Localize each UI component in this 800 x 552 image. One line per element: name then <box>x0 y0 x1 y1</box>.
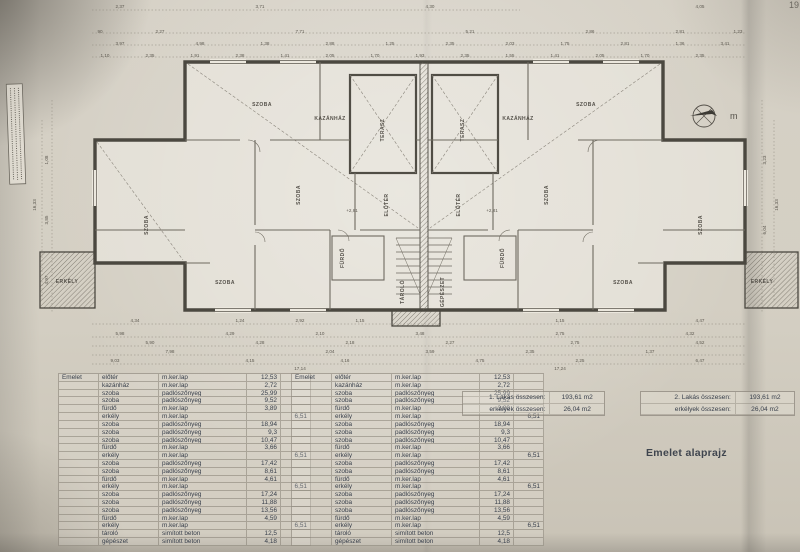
table-cell: 17,24 <box>480 491 514 499</box>
dimension-label: 4,98 <box>196 41 205 46</box>
table-cell <box>514 491 544 499</box>
dimension-label: 2,04 <box>326 349 335 354</box>
summary-value: 26,04 m2 <box>550 404 604 416</box>
table-cell: 12,5 <box>247 530 281 538</box>
dimension-label: 7,71 <box>296 29 305 34</box>
dimension-label: 2,38 <box>236 53 245 58</box>
table-cell: 4,59 <box>247 515 281 523</box>
table-cell <box>59 530 99 538</box>
table-cell <box>292 460 332 468</box>
dimension-label: 2,35 <box>446 41 455 46</box>
dimension-label: 16,33 <box>32 199 37 211</box>
dimension-label: 4,05 <box>696 4 705 9</box>
dimension-label: 6,04 <box>762 225 767 234</box>
table-cell: padlószőnyeg <box>392 491 480 499</box>
party-wall <box>420 62 428 310</box>
table-cell <box>59 491 99 499</box>
dimension-label: 4,97 <box>44 275 49 284</box>
dimension-label: 2,05 <box>596 53 605 58</box>
room-schedule-table-1: Emeletelőtérm.ker.lap12,53kazánházm.ker.… <box>58 373 311 546</box>
table-cell: padlószőnyeg <box>159 437 247 445</box>
table-cell: szoba <box>99 437 159 445</box>
table-cell: padlószőnyeg <box>159 390 247 398</box>
table-cell: m.ker.lap <box>392 452 480 460</box>
table-cell: szoba <box>332 421 392 429</box>
table-cell <box>514 437 544 445</box>
dimension-label: 5,90 <box>146 340 155 345</box>
table-cell: padlószőnyeg <box>392 507 480 515</box>
table-cell: simított beton <box>392 530 480 538</box>
table-cell: erkély <box>332 413 392 421</box>
dimension-label: 17,24 <box>554 366 566 371</box>
room-label: TERASZ <box>460 119 466 142</box>
dimension-label: 2,25 <box>576 358 585 363</box>
table-cell <box>292 499 332 507</box>
summary-apartment-2: 2. Lakás összesen: 193,61 m2 erkélyek ös… <box>640 391 795 416</box>
dimension-label: 2,75 <box>556 331 565 336</box>
table-cell: m.ker.lap <box>392 522 480 530</box>
dimension-label: 1,41 <box>281 53 290 58</box>
dimension-label: 16,33 <box>774 199 779 211</box>
dimension-label: 1,70 <box>641 53 650 58</box>
table-cell: 3,89 <box>247 405 281 413</box>
dimension-label: 1,93 <box>416 53 425 58</box>
table-cell: kazánház <box>99 382 159 390</box>
table-cell: Emelet <box>292 374 332 382</box>
table-cell: 4,59 <box>480 515 514 523</box>
dimension-label: 5,21 <box>466 29 475 34</box>
dimension-label: 2,81 <box>676 29 685 34</box>
table-cell <box>292 530 332 538</box>
table-cell: szoba <box>99 397 159 405</box>
table-cell: m.ker.lap <box>159 444 247 452</box>
room-label: SZOBA <box>576 102 596 108</box>
table-cell <box>292 468 332 476</box>
table-cell <box>59 468 99 476</box>
dimension-label: 1,25 <box>386 41 395 46</box>
table-cell: fürdő <box>332 444 392 452</box>
summary-label: 1. Lakás összesen: <box>463 392 550 404</box>
table-cell: m.ker.lap <box>159 405 247 413</box>
table-cell <box>59 452 99 460</box>
table-cell: 10,47 <box>247 437 281 445</box>
table-cell: padlószőnyeg <box>159 499 247 507</box>
table-cell: erkély <box>332 452 392 460</box>
dimension-label: 3,48 <box>416 331 425 336</box>
table-cell: 17,24 <box>247 491 281 499</box>
table-cell: szoba <box>332 429 392 437</box>
table-cell <box>480 522 514 530</box>
table-cell: szoba <box>99 460 159 468</box>
table-cell: m.ker.lap <box>159 374 247 382</box>
room-label: TÁROLÓ <box>398 280 406 304</box>
table-cell: fürdő <box>99 405 159 413</box>
table-cell <box>514 515 544 523</box>
room-label: SZOBA <box>252 102 272 108</box>
table-cell: 10,47 <box>480 437 514 445</box>
table-cell <box>514 382 544 390</box>
room-label: SZOBA <box>698 215 704 235</box>
dimension-label: 3,59 <box>426 349 435 354</box>
dimension-label: 4,30 <box>426 4 435 9</box>
table-cell: szoba <box>99 491 159 499</box>
table-cell: 9,3 <box>480 429 514 437</box>
table-cell <box>514 444 544 452</box>
table-cell: padlószőnyeg <box>159 460 247 468</box>
table-cell: 2,72 <box>247 382 281 390</box>
table-cell: 17,42 <box>480 460 514 468</box>
table-cell: 3,66 <box>247 444 281 452</box>
dimension-label: 7,98 <box>166 349 175 354</box>
dimension-label: 4,52 <box>696 340 705 345</box>
dimension-label: 1,15 <box>356 318 365 323</box>
dimension-label: 1,75 <box>561 41 570 46</box>
room-label: FÜRDŐ <box>339 248 346 268</box>
table-cell: 25,99 <box>247 390 281 398</box>
table-cell: m.ker.lap <box>392 476 480 484</box>
table-cell: szoba <box>332 468 392 476</box>
table-cell: erkély <box>99 452 159 460</box>
table-cell: fürdő <box>332 515 392 523</box>
table-cell: m.ker.lap <box>159 452 247 460</box>
table-cell <box>292 382 332 390</box>
room-label: SZOBA <box>544 185 550 205</box>
table-cell: 18,94 <box>480 421 514 429</box>
room-label: FÜRDŐ <box>499 248 506 268</box>
table-cell: előtér <box>332 374 392 382</box>
table-cell <box>514 530 544 538</box>
table-cell <box>59 515 99 523</box>
dimension-label: 4,34 <box>131 318 140 323</box>
table-cell: gépészet <box>332 538 392 546</box>
table-cell: erkély <box>332 483 392 491</box>
dimension-label: 4,28 <box>256 340 265 345</box>
dimension-label: 2,81 <box>621 41 630 46</box>
table-cell: padlószőnyeg <box>159 491 247 499</box>
table-cell <box>247 413 281 421</box>
table-cell: szoba <box>99 499 159 507</box>
table-cell: 17,42 <box>247 460 281 468</box>
table-cell <box>247 522 281 530</box>
table-cell: m.ker.lap <box>159 522 247 530</box>
dimension-label: 3,71 <box>256 4 265 9</box>
table-cell <box>514 421 544 429</box>
dimension-label: 1,24 <box>236 318 245 323</box>
table-cell: 6,51 <box>514 522 544 530</box>
dimension-label: 1,08 <box>44 155 49 164</box>
summary-value: 193,61 m2 <box>736 392 794 404</box>
table-cell <box>292 390 332 398</box>
table-cell <box>292 421 332 429</box>
dimension-label: 5,98 <box>116 331 125 336</box>
table-cell: előtér <box>99 374 159 382</box>
table-cell <box>292 437 332 445</box>
drawing-title: Emelet alaprajz <box>646 447 727 459</box>
table-cell <box>292 483 332 491</box>
dimension-label: 2,35 <box>146 53 155 58</box>
table-cell: m.ker.lap <box>392 374 480 382</box>
dimension-label: 1,55 <box>506 53 515 58</box>
table-cell <box>292 507 332 515</box>
table-cell: 2,72 <box>480 382 514 390</box>
dimension-label: 2,27 <box>446 340 455 345</box>
table-cell <box>292 397 332 405</box>
table-cell: 9,3 <box>247 429 281 437</box>
table-cell: padlószőnyeg <box>159 397 247 405</box>
table-cell: 9,52 <box>247 397 281 405</box>
table-cell <box>514 538 544 546</box>
dimension-label: 2,35 <box>696 53 705 58</box>
table-cell <box>59 483 99 491</box>
table-cell <box>59 382 99 390</box>
compass-icon: m <box>690 105 738 127</box>
dimension-label: 9,03 <box>111 358 120 363</box>
table-cell: 13,56 <box>480 507 514 515</box>
summary-label: erkélyek összesen: <box>463 404 550 416</box>
table-cell <box>247 452 281 460</box>
table-cell: tároló <box>332 530 392 538</box>
table-cell: 18,94 <box>247 421 281 429</box>
table-cell <box>292 429 332 437</box>
room-label: ERKÉLY <box>56 277 79 285</box>
table-cell <box>292 413 332 421</box>
table-cell <box>292 538 332 546</box>
room-label: ELŐTÉR <box>454 194 462 217</box>
table-cell <box>59 476 99 484</box>
table-cell: 3,66 <box>480 444 514 452</box>
dimension-label: 3,97 <box>116 41 125 46</box>
table-cell: szoba <box>332 397 392 405</box>
room-label: SZOBA <box>215 280 235 286</box>
dimension-label: 2,88 <box>326 41 335 46</box>
dimension-label: 1,10 <box>101 53 110 58</box>
dimension-label: 1,41 <box>551 53 560 58</box>
room-label: ERKÉLY <box>751 277 774 285</box>
dimension-label: 3,41 <box>721 41 730 46</box>
table-cell: m.ker.lap <box>159 515 247 523</box>
dimension-label: 2,35 <box>526 349 535 354</box>
table-cell: padlószőnyeg <box>159 507 247 515</box>
dimension-label: 90 <box>97 29 103 34</box>
room-label: KAZÁNHÁZ <box>502 115 533 122</box>
room-label: SZOBA <box>144 215 150 235</box>
dimension-label: +2,81 <box>346 208 358 213</box>
table-cell: m.ker.lap <box>392 483 480 491</box>
table-cell <box>59 405 99 413</box>
table-cell: erkély <box>99 483 159 491</box>
table-cell: fürdő <box>99 444 159 452</box>
dimension-label: +2,81 <box>486 208 498 213</box>
table-cell: padlószőnyeg <box>159 468 247 476</box>
dimension-label: 4,16 <box>341 358 350 363</box>
table-cell: padlószőnyeg <box>159 421 247 429</box>
table-cell: padlószőnyeg <box>392 499 480 507</box>
dimension-label: 2,10 <box>316 331 325 336</box>
table-cell: szoba <box>332 390 392 398</box>
table-cell: padlószőnyeg <box>392 468 480 476</box>
table-cell: m.ker.lap <box>159 483 247 491</box>
summary-value: 193,61 m2 <box>550 392 604 404</box>
svg-text:m: m <box>730 111 738 121</box>
summary-label: 2. Lakás összesen: <box>641 392 736 404</box>
table-cell <box>59 421 99 429</box>
table-cell: 6,51 <box>514 452 544 460</box>
table-cell <box>59 460 99 468</box>
table-cell <box>292 444 332 452</box>
room-label: SZOBA <box>296 185 302 205</box>
dimension-label: 3,23 <box>762 155 767 164</box>
table-cell: 8,61 <box>480 468 514 476</box>
dimension-label: 1,38 <box>261 41 270 46</box>
table-cell <box>59 390 99 398</box>
scanned-floorplan-page: { "page": { "number": "19", "title": "Em… <box>0 0 800 552</box>
table-cell <box>514 476 544 484</box>
table-cell <box>480 483 514 491</box>
dimension-label: 1,37 <box>646 349 655 354</box>
table-cell: szoba <box>332 437 392 445</box>
room-label: TERASZ <box>380 119 386 142</box>
table-cell: padlószőnyeg <box>159 429 247 437</box>
dimension-label: 4,75 <box>476 358 485 363</box>
dimension-label: 2,18 <box>346 340 355 345</box>
table-cell: szoba <box>99 429 159 437</box>
room-label: ELŐTÉR <box>382 194 390 217</box>
table-cell: m.ker.lap <box>159 413 247 421</box>
table-cell: padlószőnyeg <box>392 437 480 445</box>
dimension-label: 4,29 <box>226 331 235 336</box>
dimension-label: 2,03 <box>506 41 515 46</box>
table-cell <box>514 468 544 476</box>
table-cell: Emelet <box>59 374 99 382</box>
table-cell <box>292 491 332 499</box>
table-cell <box>59 444 99 452</box>
dimension-label: 1,23 <box>734 29 743 34</box>
dimension-label: 6,47 <box>696 358 705 363</box>
table-cell <box>59 437 99 445</box>
table-cell: erkély <box>332 522 392 530</box>
table-cell: szoba <box>99 468 159 476</box>
dimension-label: 1,15 <box>556 318 565 323</box>
table-cell: kazánház <box>332 382 392 390</box>
table-cell <box>514 429 544 437</box>
page-number: 19 <box>789 0 799 10</box>
table-cell: padlószőnyeg <box>392 460 480 468</box>
room-label: SZOBA <box>613 280 633 286</box>
table-cell: 4,61 <box>480 476 514 484</box>
table-cell: fürdő <box>99 515 159 523</box>
dimension-label: 4,32 <box>686 331 695 336</box>
table-cell: szoba <box>332 499 392 507</box>
table-cell <box>247 483 281 491</box>
table-cell <box>514 499 544 507</box>
dimension-label: 2,75 <box>571 340 580 345</box>
table-cell: padlószőnyeg <box>392 421 480 429</box>
table-cell: tároló <box>99 530 159 538</box>
table-cell <box>292 522 332 530</box>
table-cell: erkély <box>99 522 159 530</box>
table-cell: gépészet <box>99 538 159 546</box>
table-cell: szoba <box>99 390 159 398</box>
dimension-label: 1,70 <box>371 53 380 58</box>
dimension-label: 2,05 <box>326 53 335 58</box>
table-cell: szoba <box>332 507 392 515</box>
table-cell: 12,53 <box>247 374 281 382</box>
dimension-label: 2,37 <box>116 4 125 9</box>
table-cell: padlószőnyeg <box>392 429 480 437</box>
room-label: GÉPÉSZET <box>438 277 446 307</box>
table-cell <box>292 515 332 523</box>
stamp <box>6 84 25 184</box>
table-cell: szoba <box>332 491 392 499</box>
table-cell: 8,61 <box>247 468 281 476</box>
table-cell: 4,61 <box>247 476 281 484</box>
dimension-label: 17,14 <box>294 366 306 371</box>
table-cell <box>514 507 544 515</box>
summary-apartment-1: 1. Lakás összesen: 193,61 m2 erkélyek ös… <box>462 391 605 416</box>
table-cell <box>292 452 332 460</box>
table-cell <box>292 405 332 413</box>
table-cell <box>514 374 544 382</box>
dimension-label: 2,35 <box>461 53 470 58</box>
table-cell: fürdő <box>332 476 392 484</box>
table-cell: simított beton <box>392 538 480 546</box>
table-cell: m.ker.lap <box>159 382 247 390</box>
table-cell: 11,88 <box>480 499 514 507</box>
room-label: KAZÁNHÁZ <box>314 115 345 122</box>
table-cell: szoba <box>332 460 392 468</box>
table-cell <box>59 522 99 530</box>
table-cell: 13,56 <box>247 507 281 515</box>
dimension-label: 2,27 <box>156 29 165 34</box>
table-cell: m.ker.lap <box>392 382 480 390</box>
table-cell <box>59 413 99 421</box>
table-cell <box>514 460 544 468</box>
summary-value: 26,04 m2 <box>736 404 794 416</box>
table-cell: m.ker.lap <box>392 515 480 523</box>
table-cell: 12,5 <box>480 530 514 538</box>
table-cell <box>59 397 99 405</box>
table-cell: szoba <box>99 421 159 429</box>
table-cell <box>292 476 332 484</box>
table-cell <box>59 507 99 515</box>
table-cell: fürdő <box>99 476 159 484</box>
table-cell: erkély <box>99 413 159 421</box>
dimension-label: 2,86 <box>586 29 595 34</box>
table-cell: simított beton <box>159 530 247 538</box>
table-cell: 4,18 <box>247 538 281 546</box>
dimension-label: 4,47 <box>696 318 705 323</box>
dimension-label: 4,15 <box>246 358 255 363</box>
dimension-label: 1,36 <box>676 41 685 46</box>
table-cell <box>59 538 99 546</box>
dimension-label: 2,92 <box>296 318 305 323</box>
dimension-label: 1,91 <box>191 53 200 58</box>
table-cell: 12,53 <box>480 374 514 382</box>
table-cell <box>59 499 99 507</box>
summary-label: erkélyek összesen: <box>641 404 736 416</box>
table-cell: simított beton <box>159 538 247 546</box>
table-cell: 4,18 <box>480 538 514 546</box>
table-cell: m.ker.lap <box>159 476 247 484</box>
table-cell: fürdő <box>332 405 392 413</box>
table-cell: m.ker.lap <box>392 444 480 452</box>
table-cell <box>480 452 514 460</box>
table-cell: 11,88 <box>247 499 281 507</box>
table-cell <box>59 429 99 437</box>
table-cell: szoba <box>99 507 159 515</box>
dimension-label: 3,85 <box>44 215 49 224</box>
table-cell: 6,51 <box>514 483 544 491</box>
